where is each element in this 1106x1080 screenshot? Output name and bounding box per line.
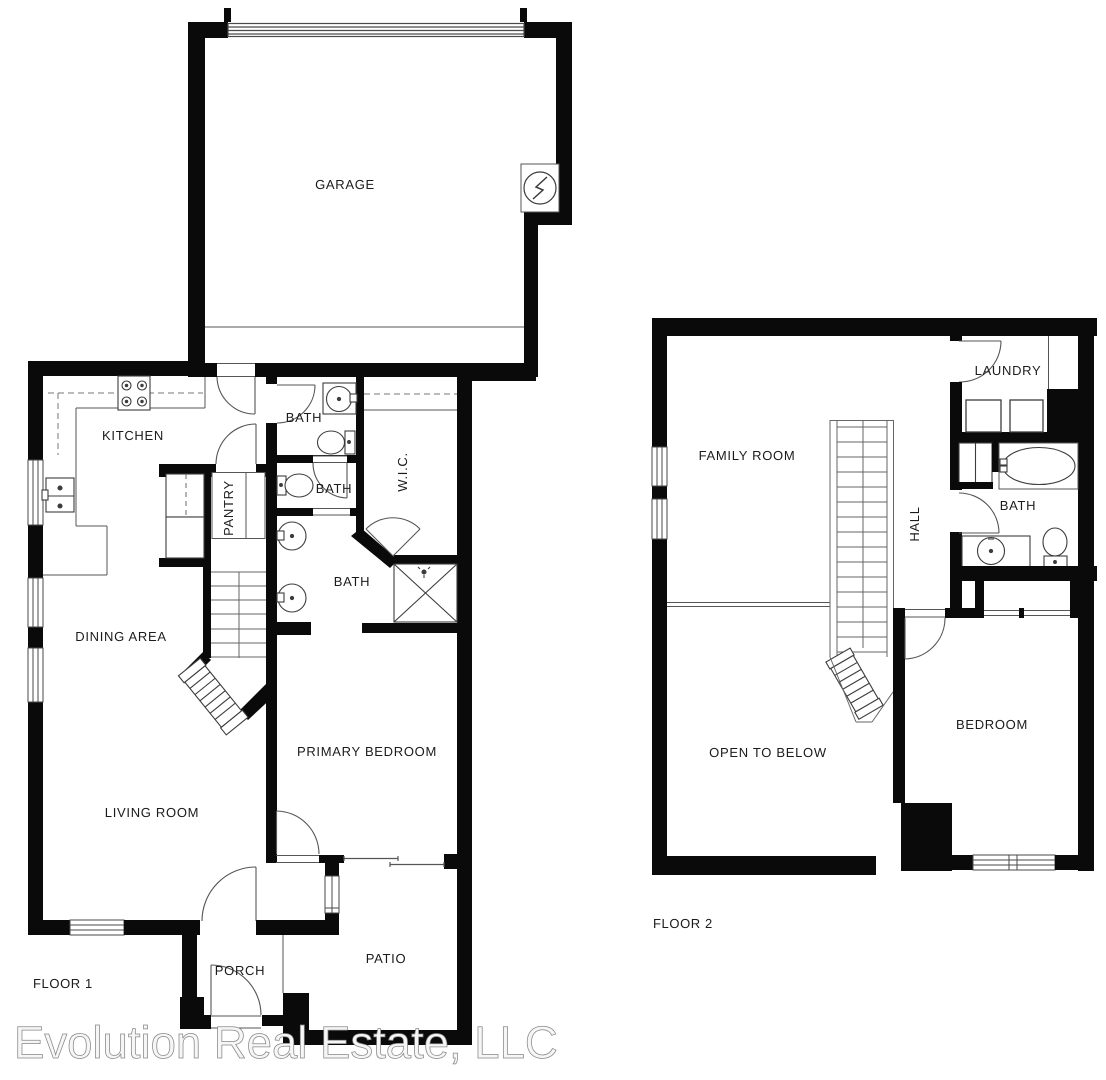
- svg-text:FLOOR 2: FLOOR 2: [653, 916, 713, 931]
- svg-text:BATH: BATH: [316, 481, 353, 496]
- svg-text:W.I.C.: W.I.C.: [395, 452, 410, 492]
- svg-text:OPEN TO BELOW: OPEN TO BELOW: [709, 745, 827, 760]
- svg-text:PANTRY: PANTRY: [221, 480, 236, 536]
- svg-text:GARAGE: GARAGE: [315, 177, 375, 192]
- svg-text:DINING AREA: DINING AREA: [75, 629, 167, 644]
- svg-text:FLOOR 1: FLOOR 1: [33, 976, 93, 991]
- svg-text:BATH: BATH: [286, 410, 323, 425]
- svg-text:KITCHEN: KITCHEN: [102, 428, 164, 443]
- svg-text:BATH: BATH: [334, 574, 371, 589]
- svg-text:BEDROOM: BEDROOM: [956, 717, 1028, 732]
- svg-text:FAMILY ROOM: FAMILY ROOM: [699, 448, 796, 463]
- svg-text:LIVING ROOM: LIVING ROOM: [105, 805, 199, 820]
- svg-text:LAUNDRY: LAUNDRY: [975, 363, 1042, 378]
- svg-text:HALL: HALL: [907, 506, 922, 541]
- svg-text:PRIMARY BEDROOM: PRIMARY BEDROOM: [297, 744, 437, 759]
- svg-text:PATIO: PATIO: [366, 951, 407, 966]
- svg-text:BATH: BATH: [1000, 498, 1037, 513]
- svg-text:PORCH: PORCH: [215, 963, 265, 978]
- svg-text:Evolution Real Estate, LLC: Evolution Real Estate, LLC: [14, 1017, 558, 1068]
